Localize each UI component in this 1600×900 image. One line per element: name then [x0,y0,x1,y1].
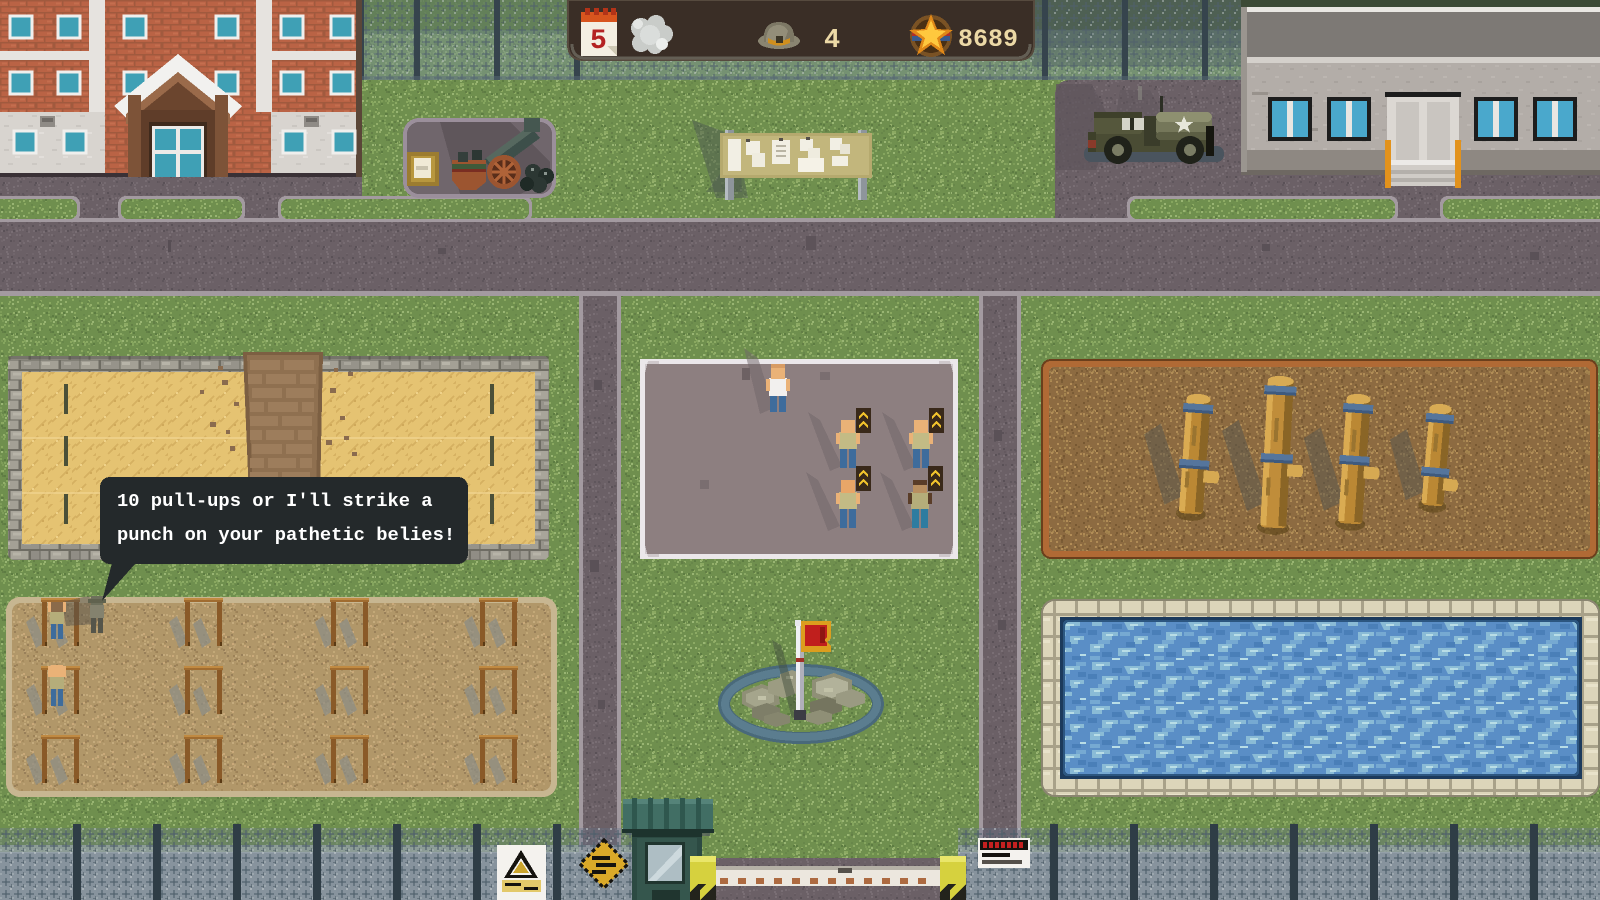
svg-text:5: 5 [590,26,607,57]
svg-text:8689: 8689 [958,25,1018,54]
svg-text:10 pull-ups or I'll strike a: 10 pull-ups or I'll strike a [117,490,433,512]
svg-text:4: 4 [824,26,840,56]
svg-text:punch on your pathetic belies!: punch on your pathetic belies! [117,524,455,546]
